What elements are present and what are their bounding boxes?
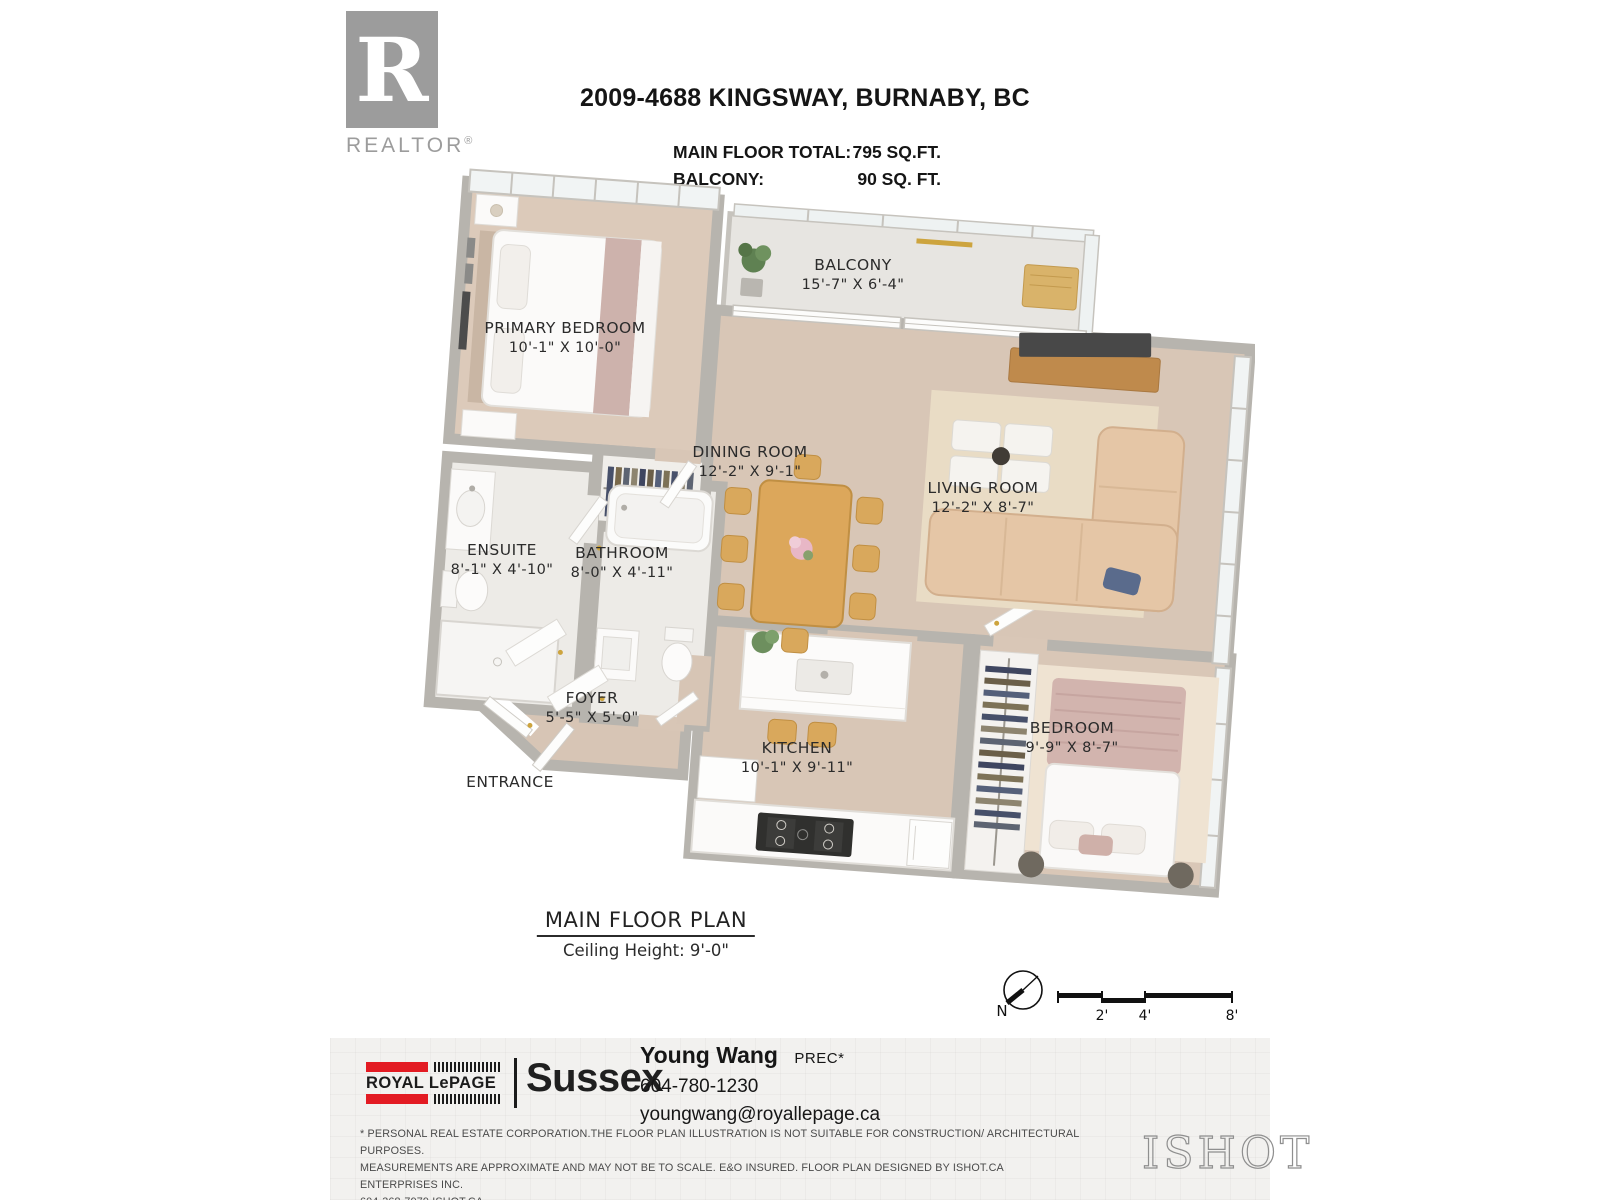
scale-tick-2ft: 2' xyxy=(1096,1008,1109,1024)
agent-phone: 604-780-1230 xyxy=(640,1076,758,1098)
room-label-primary-bedroom: PRIMARY BEDROOM 10'-1" X 10'-0" xyxy=(484,318,645,358)
room-label-ensuite: ENSUITE 8'-1" X 4'-10" xyxy=(451,540,554,580)
room-label-bathroom: BATHROOM 8'-0" X 4'-11" xyxy=(571,543,674,583)
room-label-dining-room: DINING ROOM 12'-2" X 9'-1" xyxy=(692,442,807,482)
room-label-living-room: LIVING ROOM 12'-2" X 8'-7" xyxy=(928,478,1039,518)
agent-name-row: Young Wang PREC* xyxy=(640,1042,844,1069)
disclaimer-line: 604-368-7979 ISHOT.CA xyxy=(360,1194,1080,1200)
disclaimer: * PERSONAL REAL ESTATE CORPORATION.THE F… xyxy=(360,1126,1080,1200)
area-row-main-floor: MAIN FLOOR TOTAL: 795 SQ.FT. xyxy=(673,139,941,166)
scale-bar xyxy=(1057,991,1233,1003)
royal-lepage-logo: ROYAL LePAGE xyxy=(366,1062,502,1104)
compass-icon xyxy=(1004,971,1042,1009)
room-label-entrance: ENTRANCE xyxy=(466,772,554,792)
plan-caption: MAIN FLOOR PLAN Ceiling Height: 9'-0" xyxy=(537,908,755,960)
disclaimer-line: MEASUREMENTS ARE APPROXIMATE AND MAY NOT… xyxy=(360,1160,1080,1194)
plan-caption-title: MAIN FLOOR PLAN xyxy=(537,908,755,937)
realtor-logo: R REALTOR® xyxy=(346,11,466,158)
agent-designation: PREC* xyxy=(794,1050,844,1067)
agent-name: Young Wang xyxy=(640,1042,778,1068)
realtor-r-icon: R xyxy=(346,11,438,128)
disclaimer-line: * PERSONAL REAL ESTATE CORPORATION.THE F… xyxy=(360,1126,1080,1160)
scale-tick-4ft: 4' xyxy=(1139,1008,1152,1024)
room-label-bedroom: BEDROOM 9'-9" X 8'-7" xyxy=(1025,718,1118,758)
compass-north-label: N xyxy=(996,1002,1007,1020)
royal-lepage-bar-bottom xyxy=(366,1094,502,1104)
agent-email: youngwang@royallepage.ca xyxy=(640,1104,880,1126)
royal-lepage-bar-top xyxy=(366,1062,502,1072)
compass-and-scale: N 2' 4' 8' xyxy=(960,940,1260,1030)
floor-plan-page: R REALTOR® 2009-4688 KINGSWAY, BURNABY, … xyxy=(0,0,1600,1200)
sofa xyxy=(925,508,1179,612)
tv xyxy=(1019,333,1151,357)
page-title: 2009-4688 KINGSWAY, BURNABY, BC xyxy=(480,84,1130,113)
area-label: MAIN FLOOR TOTAL: xyxy=(673,139,851,166)
footer-band: ROYAL LePAGE Sussex Young Wang PREC* 604… xyxy=(330,1038,1270,1200)
area-value: 795 SQ.FT. xyxy=(852,139,941,166)
royal-lepage-wordmark: ROYAL LePAGE xyxy=(366,1072,502,1094)
realtor-wordmark: REALTOR® xyxy=(346,134,466,158)
logo-divider xyxy=(514,1058,517,1108)
plan-caption-subtitle: Ceiling Height: 9'-0" xyxy=(537,941,755,960)
room-label-foyer: FOYER 5'-5" X 5'-0" xyxy=(545,688,638,728)
realtor-r-letter: R xyxy=(355,26,428,114)
room-label-balcony: BALCONY 15'-7" X 6'-4" xyxy=(802,255,905,295)
room-label-kitchen: KITCHEN 10'-1" X 9'-11" xyxy=(741,738,853,778)
ishot-logo: ISHOT xyxy=(1142,1128,1313,1179)
registered-mark: ® xyxy=(464,135,472,147)
scale-tick-8ft: 8' xyxy=(1226,1008,1239,1024)
